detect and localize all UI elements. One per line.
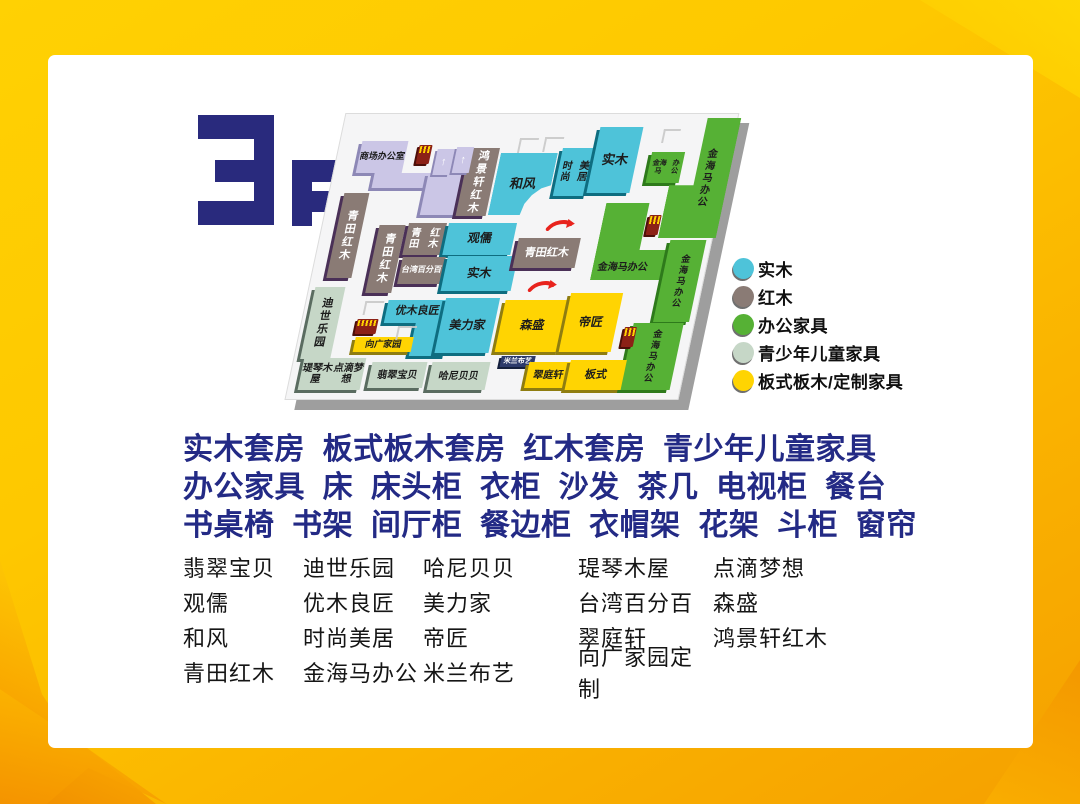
store-name: 鸿景轩红木 — [713, 619, 883, 654]
store-name: 观儒 — [183, 584, 303, 619]
store-name — [713, 654, 883, 689]
stairs-icon — [542, 137, 564, 152]
store-name: 和风 — [183, 619, 303, 654]
map-block: 翡翠宝贝 — [367, 362, 428, 388]
legend-color-dot-icon — [733, 286, 754, 307]
store-name: 金海马办公 — [303, 654, 423, 689]
category-line: 实木套房 板式板木套房 红木套房 青少年儿童家具 — [183, 431, 917, 469]
legend-label: 板式板木/定制家具 — [758, 368, 903, 393]
floor-map: 商场办公室鸿景轩红木和风时尚美居实木金海马办公金海马办公青田红木青田红木青田红木… — [285, 115, 737, 398]
store-name: 哈尼贝贝 — [423, 549, 578, 584]
legend-color-dot-icon — [733, 370, 754, 391]
store-name: 点滴梦想 — [713, 549, 883, 584]
store-name: 森盛 — [713, 584, 883, 619]
stairs-icon — [395, 326, 417, 340]
map-block: 青田红木 — [512, 238, 580, 268]
map-block: 森盛 — [495, 300, 570, 352]
stairs-icon — [362, 301, 384, 315]
digit3-stem — [254, 115, 274, 225]
store-name: 青田红木 — [183, 654, 303, 689]
category-line: 办公家具 床 床头柜 衣柜 沙发 茶几 电视柜 餐台 — [183, 469, 917, 507]
legend-label: 青少年儿童家具 — [758, 340, 881, 365]
store-name: 台湾百分百 — [578, 584, 713, 619]
stairs-icon — [517, 138, 539, 153]
map-block: 实木 — [441, 256, 518, 291]
store-name: 迪世乐园 — [303, 549, 423, 584]
legend-item: 板式板木/定制家具 — [733, 366, 903, 394]
legend-item: 实木 — [733, 254, 903, 282]
store-name: 优木良匠 — [303, 584, 423, 619]
store-name: 向广家园定制 — [578, 654, 713, 689]
elevator-icon — [354, 319, 378, 334]
store-name: 米兰布艺 — [423, 654, 578, 689]
product-category-lines: 实木套房 板式板木套房 红木套房 青少年儿童家具办公家具 床 床头柜 衣柜 沙发… — [183, 431, 917, 545]
legend-label: 实木 — [758, 256, 793, 281]
store-name: 美力家 — [423, 584, 578, 619]
escalator-direction-arrow-icon — [544, 218, 577, 231]
map-block: 金海马办公 — [646, 152, 686, 183]
escalator-direction-arrow-icon — [526, 279, 559, 292]
legend-item: 办公家具 — [733, 310, 903, 338]
legend-label: 办公家具 — [758, 312, 828, 337]
legend-color-dot-icon — [733, 258, 754, 279]
map-legend: 实木红木办公家具青少年儿童家具板式板木/定制家具 — [733, 254, 903, 394]
map-block: 台湾百分百 — [397, 257, 446, 284]
category-line: 书桌椅 书架 间厅柜 餐边柜 衣帽架 花架 斗柜 窗帘 — [183, 507, 917, 545]
floor-directory-poster: { "floor_label": "3F", "legend": { "item… — [0, 0, 1080, 804]
store-name: 帝匠 — [423, 619, 578, 654]
store-directory: 翡翠宝贝迪世乐园哈尼贝贝瑅琴木屋点滴梦想观儒优木良匠美力家台湾百分百森盛和风时尚… — [183, 549, 883, 689]
map-block: 商场办公室 — [356, 141, 409, 173]
legend-label: 红木 — [758, 284, 793, 309]
store-name: 瑅琴木屋 — [578, 549, 713, 584]
store-name: 翡翠宝贝 — [183, 549, 303, 584]
map-block: 板式 — [565, 360, 627, 390]
stairs-icon — [661, 129, 681, 143]
legend-item: 红木 — [733, 282, 903, 310]
legend-color-dot-icon — [733, 342, 754, 363]
map-block: 观儒 — [442, 223, 517, 255]
legend-item: 青少年儿童家具 — [733, 338, 903, 366]
legend-color-dot-icon — [733, 314, 754, 335]
map-block: 瑅琴木屋点滴梦想 — [298, 358, 367, 390]
map-block: 哈尼贝贝 — [427, 362, 491, 390]
map-block: 青田红木 — [402, 223, 447, 255]
store-name: 时尚美居 — [303, 619, 423, 654]
